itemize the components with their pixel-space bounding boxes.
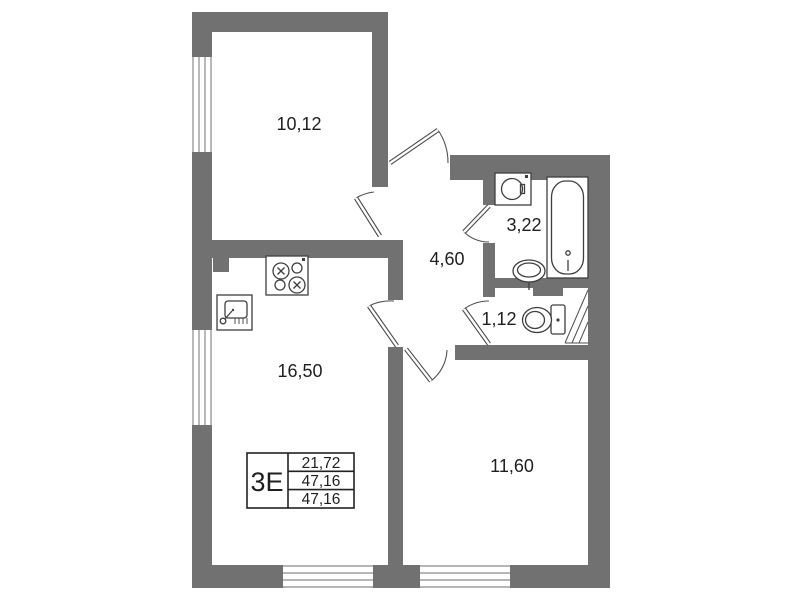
floor-plan-drawing: 10,12 4,60 3,22 1,12 16,50 11,60 3E 21,7…: [0, 0, 799, 600]
kitchen-sink-icon: [217, 295, 252, 330]
kitchen-top-wall: [192, 240, 403, 258]
area-label-hall: 4,60: [429, 249, 464, 269]
washing-machine-icon: [495, 173, 531, 205]
window-bedroom-bottom: [420, 565, 510, 588]
bottom-exterior-wall-pier: [373, 565, 420, 588]
stamp-row-2: 47,16: [302, 473, 341, 490]
floor-plan: 10,12 4,60 3,22 1,12 16,50 11,60 3E 21,7…: [0, 0, 799, 600]
kitchen-pillar: [213, 258, 229, 272]
window-opening: [192, 57, 212, 152]
bathtub-icon: [547, 177, 588, 278]
area-label-top-room: 10,12: [276, 114, 321, 134]
wc-duct-stub: [533, 288, 563, 296]
top-room-right-wall: [372, 12, 388, 187]
mid-wall-upper: [388, 240, 403, 300]
hall-bathroom-wall-seg1: [483, 180, 495, 205]
left-exterior-wall-seg1: [192, 12, 212, 57]
window-opening: [283, 565, 373, 588]
area-label-bedroom: 11,60: [490, 456, 534, 476]
toilet-icon: [523, 305, 566, 334]
window-kitchen-bottom: [283, 565, 373, 588]
window-top-room: [192, 57, 212, 152]
window-opening: [192, 330, 212, 425]
hall-bathroom-wall-seg2: [483, 243, 495, 297]
stove-icon: [266, 256, 308, 295]
window-kitchen-left: [192, 330, 212, 425]
left-exterior-wall-seg3: [192, 425, 212, 588]
right-exterior-wall: [588, 155, 610, 588]
area-label-kitchen-living: 16,50: [277, 361, 322, 381]
area-label-wc: 1,12: [481, 309, 516, 329]
window-opening: [420, 565, 510, 588]
stamp-flat-type: 3E: [250, 467, 283, 497]
bottom-exterior-wall-seg1: [192, 565, 283, 588]
area-label-bathroom: 3,22: [506, 215, 541, 235]
mid-wall-lower: [388, 347, 403, 588]
bedroom-top-wall: [455, 345, 588, 360]
stamp-row-1: 21,72: [302, 455, 341, 472]
top-exterior-wall: [192, 12, 388, 32]
stamp-row-3: 47,16: [302, 491, 341, 508]
